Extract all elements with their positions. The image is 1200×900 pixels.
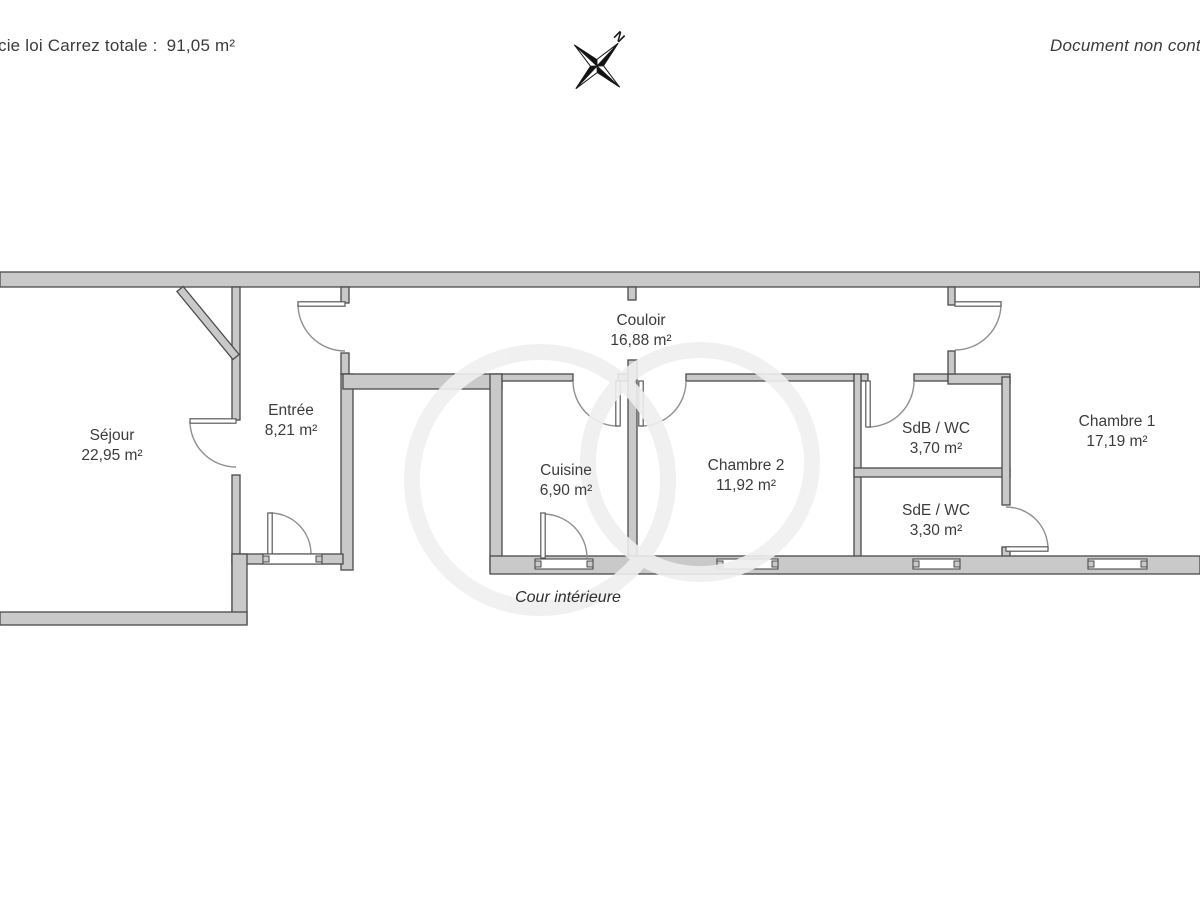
- carrez-value: 91,05 m²: [167, 36, 236, 55]
- wall: [341, 374, 353, 570]
- room-label-cuisine: Cuisine 6,90 m²: [540, 461, 593, 501]
- room-area: 22,95 m²: [81, 446, 142, 466]
- room-area: 8,21 m²: [265, 421, 318, 441]
- door-leaf: [866, 381, 870, 427]
- compass-icon: N: [553, 22, 641, 110]
- wall: [914, 374, 948, 381]
- door-leaf: [955, 302, 1001, 306]
- door-arc: [190, 421, 236, 467]
- wall: [948, 351, 955, 374]
- door-leaf: [190, 419, 236, 423]
- room-name: SdE / WC: [902, 501, 970, 521]
- floorplan-drawing: N: [0, 0, 1200, 900]
- room-name: Couloir: [610, 311, 671, 331]
- room-label-entree: Entrée 8,21 m²: [265, 401, 318, 441]
- room-label-chambre2: Chambre 2 11,92 m²: [708, 456, 785, 496]
- room-name: Séjour: [81, 426, 142, 446]
- door-leaf: [268, 513, 272, 554]
- wall: [854, 374, 861, 557]
- wall: [0, 612, 247, 625]
- wall: [1002, 377, 1010, 505]
- window-icon: [1088, 559, 1147, 569]
- carrez-total: cie loi Carrez totale :91,05 m²: [0, 36, 235, 56]
- wall: [0, 272, 1200, 287]
- carrez-label: cie loi Carrez totale :: [0, 36, 158, 55]
- window-icon: [913, 559, 960, 569]
- wall: [854, 468, 1010, 477]
- window-icon: [263, 554, 322, 564]
- walls: [0, 272, 1200, 625]
- door-arc: [955, 304, 1001, 350]
- wall: [341, 353, 349, 374]
- wall: [861, 374, 868, 381]
- room-area: 11,92 m²: [708, 476, 785, 496]
- door-arc: [298, 304, 345, 351]
- wall-diagonal: [177, 287, 239, 360]
- wall: [502, 374, 573, 381]
- room-area: 6,90 m²: [540, 481, 593, 501]
- room-area: 3,30 m²: [902, 521, 970, 541]
- door-leaf: [541, 513, 545, 558]
- north-label: N: [611, 28, 628, 45]
- door-arc: [543, 514, 587, 558]
- wall: [948, 287, 955, 305]
- wall: [948, 374, 1010, 384]
- wall: [490, 374, 502, 570]
- room-name: Cuisine: [540, 461, 593, 481]
- courtyard-label: Cour intérieure: [515, 589, 621, 607]
- room-area: 16,88 m²: [610, 331, 671, 351]
- window-icon: [535, 559, 593, 569]
- room-name: Entrée: [265, 401, 318, 421]
- room-label-sdb: SdB / WC 3,70 m²: [902, 419, 970, 459]
- room-name: Chambre 1: [1079, 412, 1156, 432]
- door-arc: [1006, 507, 1048, 549]
- door-leaf: [1006, 547, 1048, 551]
- room-name: Chambre 2: [708, 456, 785, 476]
- room-area: 17,19 m²: [1079, 432, 1156, 452]
- wall: [341, 287, 349, 303]
- room-name: SdB / WC: [902, 419, 970, 439]
- room-area: 3,70 m²: [902, 439, 970, 459]
- room-label-chambre1: Chambre 1 17,19 m²: [1079, 412, 1156, 452]
- room-label-couloir: Couloir 16,88 m²: [610, 311, 671, 351]
- wall: [628, 287, 636, 300]
- room-label-sejour: Séjour 22,95 m²: [81, 426, 142, 466]
- door-arc: [270, 513, 311, 554]
- disclaimer-text: Document non contr: [1050, 36, 1200, 56]
- floorplan-page: N cie loi Carrez totale :91,05 m² Docume…: [0, 0, 1200, 900]
- room-label-sde: SdE / WC 3,30 m²: [902, 501, 970, 541]
- door-leaf: [298, 302, 345, 306]
